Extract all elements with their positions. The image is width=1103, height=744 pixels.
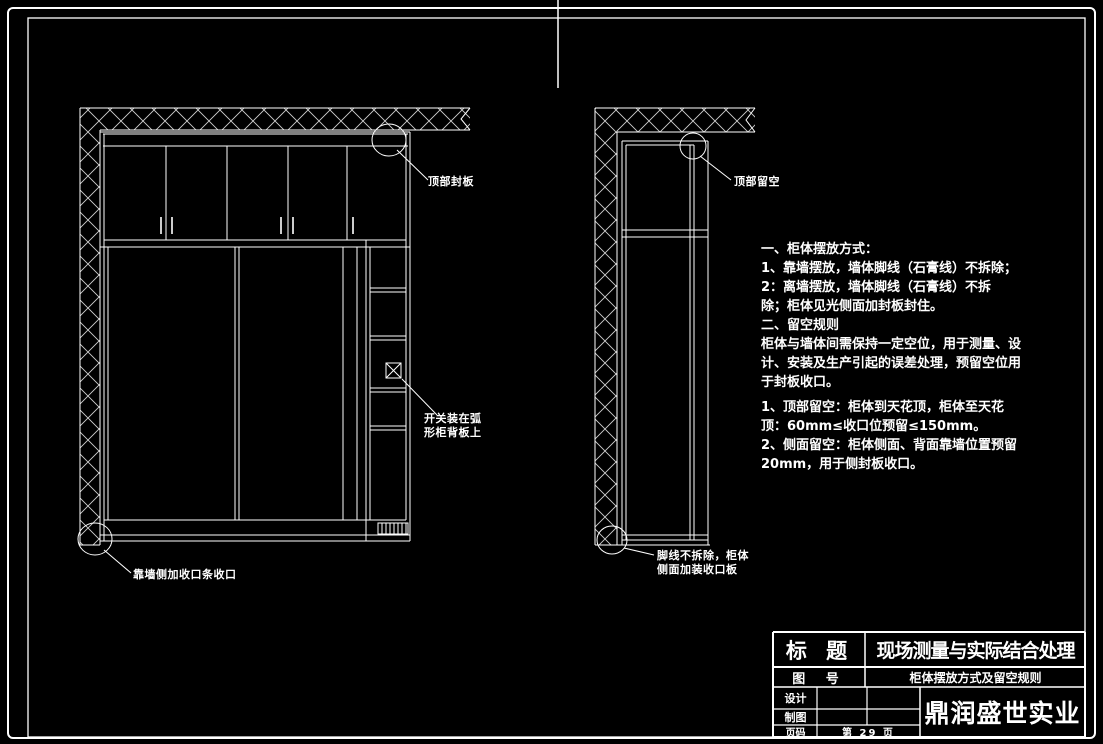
front-side-column — [366, 240, 406, 541]
notes-block: 一、柜体摆放方式： 1、靠墙摆放，墙体脚线（石膏线）不拆除； 2：离墙摆放，墙体… — [761, 240, 1066, 474]
label-switch-note-line2: 形柜背板上 — [424, 426, 482, 440]
title-block-page-label: 页码 — [774, 725, 817, 737]
label-skirting-note-line2: 侧面加装收口板 — [657, 563, 749, 577]
note-line: 顶：60mm≤收口位预留≤150mm。 — [761, 417, 1066, 436]
front-cabinet-outline — [100, 132, 410, 541]
note-line: 2：离墙摆放，墙体脚线（石膏线）不拆 — [761, 278, 1066, 297]
label-wall-side-trim: 靠墙侧加收口条收口 — [133, 568, 237, 582]
label-skirting-note: 脚线不拆除，柜体 侧面加装收口板 — [657, 549, 749, 577]
front-base — [100, 520, 410, 541]
detail-markers-front — [78, 124, 437, 573]
leader-top-seal — [397, 150, 428, 180]
switch-symbol — [386, 363, 401, 378]
note-line: 柜体与墙体间需保持一定空位，用于测量、设 — [761, 335, 1066, 354]
note-line: 1、顶部留空：柜体到天花顶，柜体至天花 — [761, 398, 1066, 417]
label-switch-note-line1: 开关装在弧 — [424, 412, 482, 426]
note-line: 2、侧面留空：柜体侧面、背面靠墙位置预留 — [761, 436, 1066, 455]
note-line: 于封板收口。 — [761, 373, 1066, 392]
title-block-page-value: 第 29 页 — [818, 725, 919, 737]
side-elevation — [595, 108, 755, 555]
leader-top-gap — [700, 156, 731, 180]
label-switch-note: 开关装在弧 形柜背板上 — [424, 412, 482, 440]
note-line: 二、留空规则 — [761, 316, 1066, 335]
title-block-number-value: 柜体摆放方式及留空规则 — [866, 667, 1085, 687]
label-skirting-note-line1: 脚线不拆除，柜体 — [657, 549, 749, 563]
title-block-company: 鼎润盛世实业 — [921, 687, 1084, 737]
leader-skirting — [624, 548, 654, 555]
cad-drawing-sheet: 顶部封板 开关装在弧 形柜背板上 靠墙侧加收口条收口 顶部留空 脚线不拆除，柜体… — [0, 0, 1103, 744]
label-top-seal-panel: 顶部封板 — [428, 175, 474, 189]
leader-wall-trim — [104, 550, 131, 573]
side-wall-hatch — [595, 108, 755, 545]
label-top-gap: 顶部留空 — [734, 175, 780, 189]
detail-circle-top-gap — [680, 133, 706, 159]
title-block-number-label: 图 号 — [774, 667, 865, 687]
note-line: 一、柜体摆放方式： — [761, 240, 1066, 259]
front-sliding-doors — [108, 247, 357, 520]
front-top-cabinets — [100, 146, 410, 247]
note-line: 除；柜体见光侧面加封板封住。 — [761, 297, 1066, 316]
side-cabinet-outline — [617, 141, 710, 545]
base-hatch — [378, 523, 408, 534]
note-line: 1、靠墙摆放，墙体脚线（石膏线）不拆除； — [761, 259, 1066, 278]
leader-switch — [402, 379, 437, 415]
front-elevation — [78, 108, 470, 573]
title-block-design-label: 设计 — [774, 687, 817, 709]
note-line: 计、安装及生产引起的误差处理，预留空位用 — [761, 354, 1066, 373]
title-block-title-label: 标 题 — [774, 632, 865, 667]
front-wall-hatch — [80, 108, 470, 545]
title-block-title-value: 现场测量与实际结合处理 — [866, 632, 1085, 667]
note-line: 20mm，用于侧封板收口。 — [761, 455, 1066, 474]
